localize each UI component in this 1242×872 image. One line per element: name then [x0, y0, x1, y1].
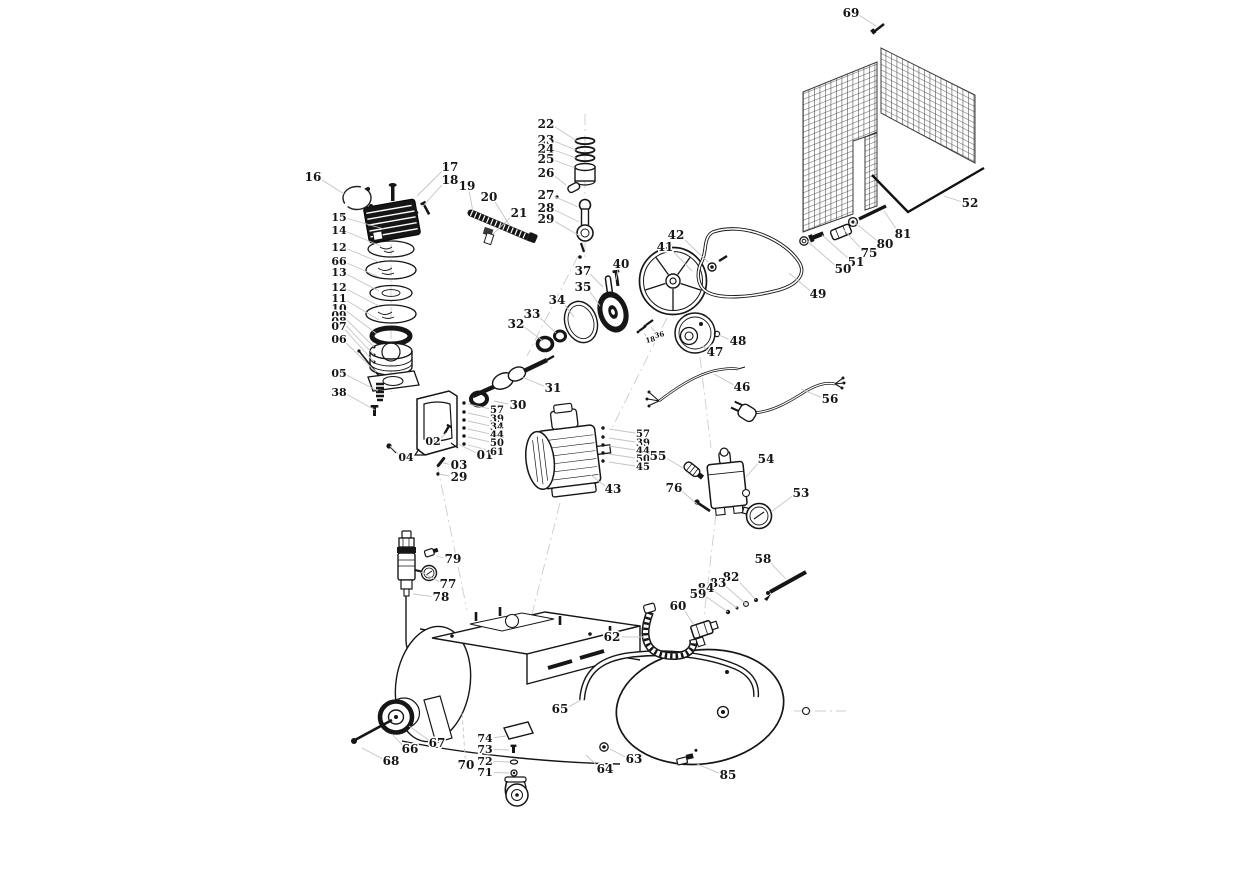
leader-line-80: [854, 222, 877, 241]
callout-70: 70: [458, 758, 475, 772]
bearing-30: [471, 393, 487, 406]
guard-screw: [870, 24, 884, 35]
callout-38: 38: [331, 386, 347, 399]
leader-line-29: [555, 221, 580, 236]
axle-bolt: [351, 720, 392, 744]
callout-40: 40: [613, 257, 630, 271]
leader-line-32: [524, 327, 543, 341]
motor: [520, 399, 615, 500]
callout-27: 27: [538, 188, 555, 202]
leader-line-12: [347, 249, 379, 262]
leader-line-52: [944, 196, 961, 202]
callout-53: 53: [793, 486, 810, 500]
callout-62: 62: [604, 630, 621, 644]
callout-54: 54: [758, 452, 775, 466]
callout-49: 49: [810, 287, 827, 301]
leader-line-71: [494, 772, 509, 773]
leader-line-23: [555, 142, 576, 150]
leader-line-24: [555, 151, 576, 159]
callout-78: 78: [433, 590, 450, 604]
callout-20: 20: [481, 190, 498, 204]
callout-35: 35: [575, 280, 592, 294]
leader-line-01: [458, 444, 476, 453]
leader-line-34: [468, 421, 489, 426]
callout-06: 06: [331, 333, 347, 346]
leader-line-50: [609, 454, 635, 458]
cylinder-head: [363, 183, 420, 243]
leader-line-69: [860, 15, 877, 26]
leader-line-65: [569, 700, 581, 707]
callout-02: 02: [425, 435, 440, 448]
leader-line-45: [609, 462, 635, 466]
bolt-40: [612, 270, 621, 287]
valve-small-parts: [726, 594, 771, 614]
callout-46: 46: [734, 380, 751, 394]
callout-22: 22: [538, 117, 555, 131]
callout-58: 58: [755, 552, 772, 566]
switch-screw: [694, 499, 710, 511]
callout-16: 16: [305, 170, 322, 184]
callout-52: 52: [962, 196, 979, 210]
callout-81: 81: [895, 227, 912, 241]
callout-66: 66: [402, 742, 419, 756]
callout-76: 76: [666, 481, 683, 495]
leader-line-31: [522, 377, 544, 386]
callout-07: 07: [331, 320, 346, 333]
callout-13: 13: [331, 266, 346, 279]
callout-61: 61: [490, 447, 504, 458]
leader-line-28: [555, 210, 579, 222]
callout-63: 63: [626, 752, 643, 766]
callout-50: 50: [835, 262, 852, 276]
leader-line-29: [439, 474, 450, 476]
callout-32: 32: [508, 317, 525, 331]
callout-12: 12: [331, 241, 346, 254]
leader-line-38: [347, 394, 375, 410]
callout-37: 37: [575, 264, 592, 278]
callout-68: 68: [383, 754, 400, 768]
motor-wire: [646, 367, 746, 408]
leader-line-73: [494, 749, 509, 750]
piston-assembly: [555, 138, 595, 259]
leader-line-50: [468, 437, 489, 442]
callout-25: 25: [538, 152, 555, 166]
callout-60: 60: [670, 599, 687, 613]
leader-line-85: [697, 764, 719, 773]
callout-34: 34: [549, 293, 566, 307]
retainer-ring: [343, 187, 373, 210]
callout-69: 69: [843, 6, 860, 20]
leader-line-74: [494, 736, 506, 738]
callout-26: 26: [538, 166, 555, 180]
construction-lines: [391, 114, 846, 711]
callout-29: 29: [451, 470, 468, 484]
elbow-fitting: [480, 227, 495, 245]
leader-line-25: [555, 161, 575, 169]
leader-line-39: [609, 438, 635, 442]
leader-line-48: [719, 335, 729, 339]
leader-line-44: [609, 446, 635, 450]
callout-48: 48: [730, 334, 747, 348]
pressure-gauge: [742, 504, 771, 529]
callout-43: 43: [605, 482, 622, 496]
callout-05: 05: [331, 367, 346, 380]
callout-79: 79: [445, 552, 462, 566]
callout-31: 31: [545, 381, 562, 395]
leader-line-66: [347, 263, 379, 277]
leader-line-26: [554, 176, 566, 185]
belt-guard: [803, 48, 984, 232]
callout-17: 17: [442, 160, 459, 174]
leader-line-09: [346, 319, 375, 347]
callout-04: 04: [398, 451, 414, 464]
callout-30: 30: [510, 398, 527, 412]
callout-59: 59: [690, 587, 707, 601]
crankshaft: [473, 356, 554, 396]
leader-line-64: [586, 755, 597, 766]
leader-line-46: [714, 374, 733, 385]
leader-line-44: [468, 429, 489, 434]
callout-77: 77: [440, 577, 457, 591]
callout-19: 19: [459, 179, 476, 193]
leader-line-72: [494, 761, 509, 762]
inlet-fitting: [424, 547, 439, 557]
callout-64: 64: [597, 762, 614, 776]
leader-line-68: [362, 748, 382, 759]
filter-regulator: [397, 531, 437, 596]
leader-line-55: [667, 458, 683, 468]
leader-line-19: [469, 191, 473, 212]
callout-80: 80: [877, 237, 894, 251]
callout-55: 55: [650, 449, 667, 463]
callout-56: 56: [822, 392, 839, 406]
callout-41: 41: [657, 240, 674, 254]
flywheel: [640, 248, 707, 315]
motor-bolts: [601, 426, 604, 462]
bearing-33: [555, 331, 566, 341]
leader-line-37: [591, 274, 604, 287]
leader-line-30: [494, 401, 509, 404]
leader-line-53: [771, 496, 793, 512]
leader-line-22: [554, 127, 577, 142]
tank-plug: [600, 743, 608, 751]
callout-14: 14: [331, 224, 347, 237]
leader-line-33: [540, 317, 557, 333]
leader-line-78: [413, 594, 432, 596]
leader-line-03: [443, 463, 450, 464]
leader-line-50: [806, 240, 835, 266]
flywheel-nut: [708, 256, 727, 271]
cover-screws: [637, 320, 653, 333]
callout-85: 85: [720, 768, 737, 782]
callout-15: 15: [331, 211, 346, 224]
callout-36: 36: [654, 329, 666, 340]
stud-bolt-38: [371, 405, 379, 416]
diagram-stage: 6952818075515042414948474037353433323130…: [0, 0, 1242, 872]
callout-18: 18: [442, 173, 459, 187]
leader-line-63: [610, 749, 625, 757]
leader-line-58: [770, 563, 786, 580]
wire-connector: [682, 461, 705, 482]
callout-45: 45: [636, 462, 650, 473]
exploded-view-drawing: 6952818075515042414948474037353433323130…: [0, 0, 1242, 872]
leader-line-82: [738, 581, 756, 600]
leader-line-70: [462, 712, 465, 760]
leader-line-16: [321, 180, 344, 195]
unloader-rod: [766, 572, 806, 595]
leader-line-79: [437, 556, 444, 558]
leader-line-17: [417, 171, 443, 197]
callout-65: 65: [552, 702, 569, 716]
bearing-32: [538, 338, 553, 351]
callout-21: 21: [511, 206, 528, 220]
leader-line-57: [609, 429, 635, 433]
callout-67: 67: [429, 736, 446, 750]
callout-47: 47: [707, 345, 724, 359]
leader-line-76: [682, 491, 697, 504]
leader-line-75: [844, 230, 862, 249]
callout-33: 33: [524, 307, 541, 321]
callout-29: 29: [538, 212, 555, 226]
callout-71: 71: [477, 766, 492, 779]
leader-line-39: [468, 413, 489, 418]
pressure-switch: [705, 446, 751, 516]
leader-line-27: [555, 197, 578, 207]
caster: [504, 722, 533, 806]
